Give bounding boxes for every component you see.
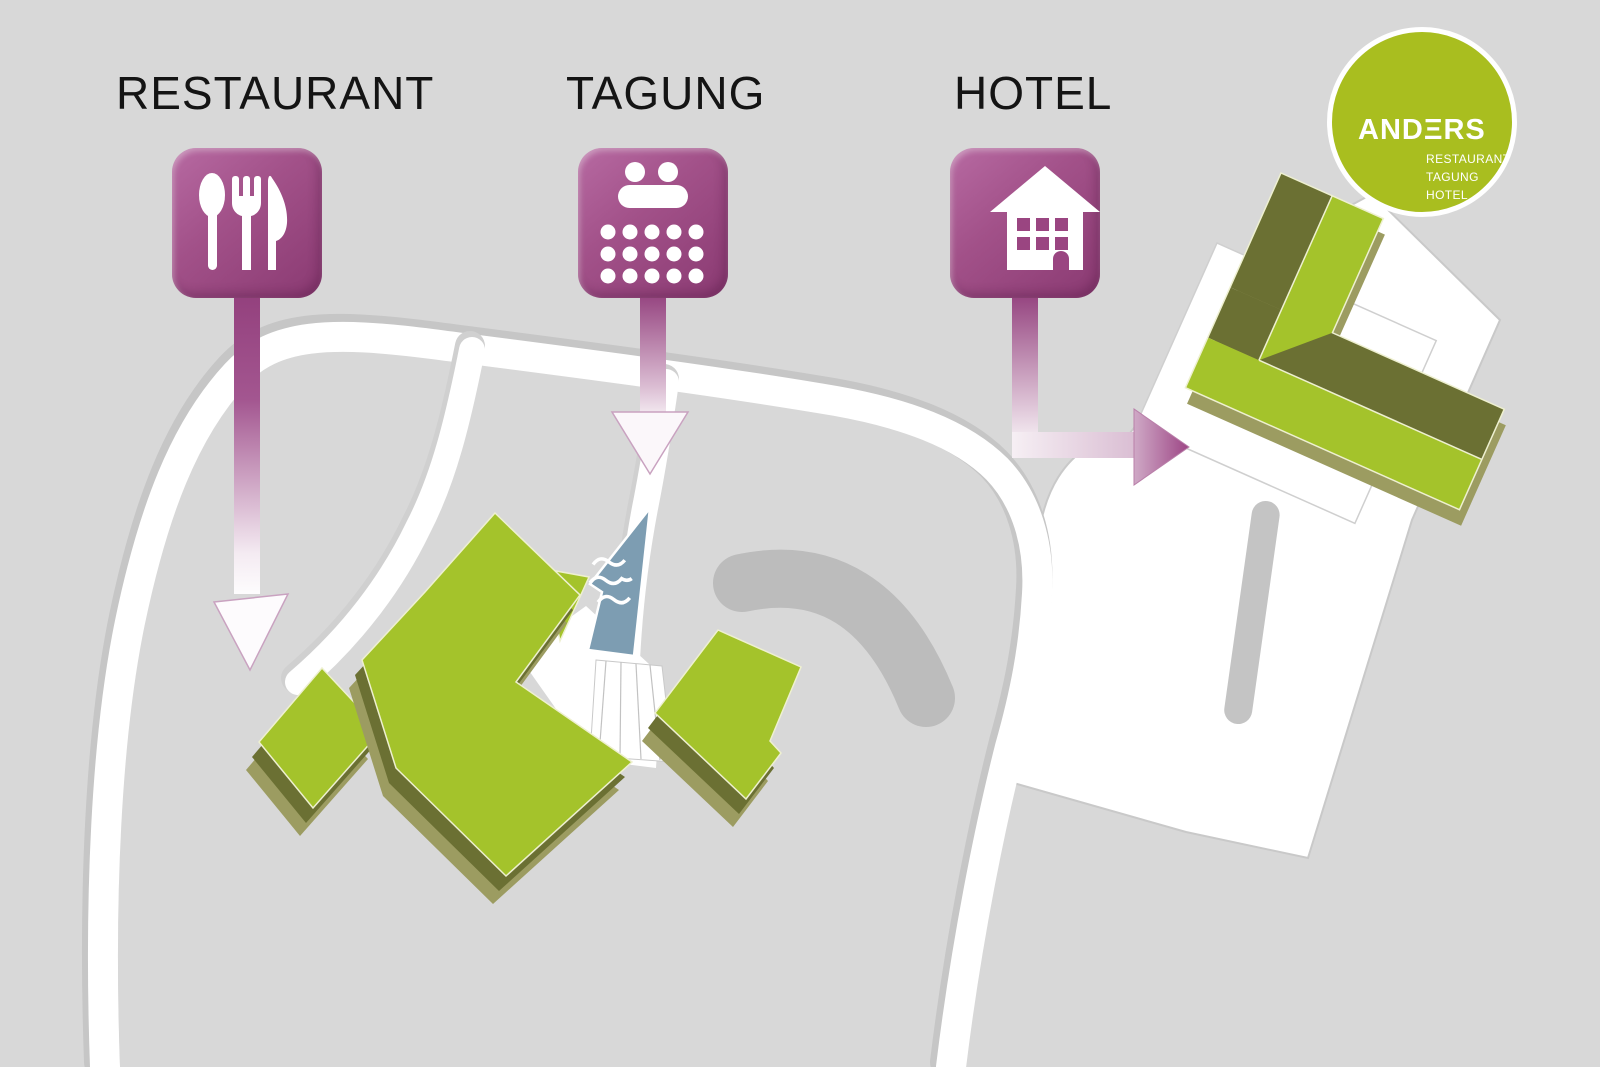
tagung-marker — [578, 148, 728, 298]
conference-seating-icon — [578, 148, 728, 298]
hotel-marker — [950, 148, 1100, 298]
house-icon — [950, 148, 1100, 298]
hotel-arrow-elbow — [1012, 432, 1136, 458]
legend-label-restaurant: RESTAURANT — [116, 70, 434, 116]
brand-logo-badge: ANDΞRS RESTAURANT TAGUNG HOTEL — [1327, 27, 1517, 217]
logo-subline-hotel: HOTEL — [1426, 189, 1468, 201]
hotel-arrow-stem — [1012, 292, 1038, 440]
brand-wordmark: ANDΞRS — [1358, 116, 1486, 145]
legend-label-hotel: HOTEL — [954, 70, 1112, 116]
legend-label-tagung: TAGUNG — [566, 70, 765, 116]
site-map-page: RESTAURANT TAGUNG HOTEL ANDΞRS RESTAU — [0, 0, 1600, 1067]
restaurant-arrow-stem — [234, 292, 260, 594]
tagung-arrow-stem — [640, 292, 666, 414]
cutlery-icon — [172, 148, 322, 298]
logo-subline-restaurant: RESTAURANT — [1426, 153, 1510, 165]
logo-subline-tagung: TAGUNG — [1426, 171, 1479, 183]
restaurant-marker — [172, 148, 322, 298]
